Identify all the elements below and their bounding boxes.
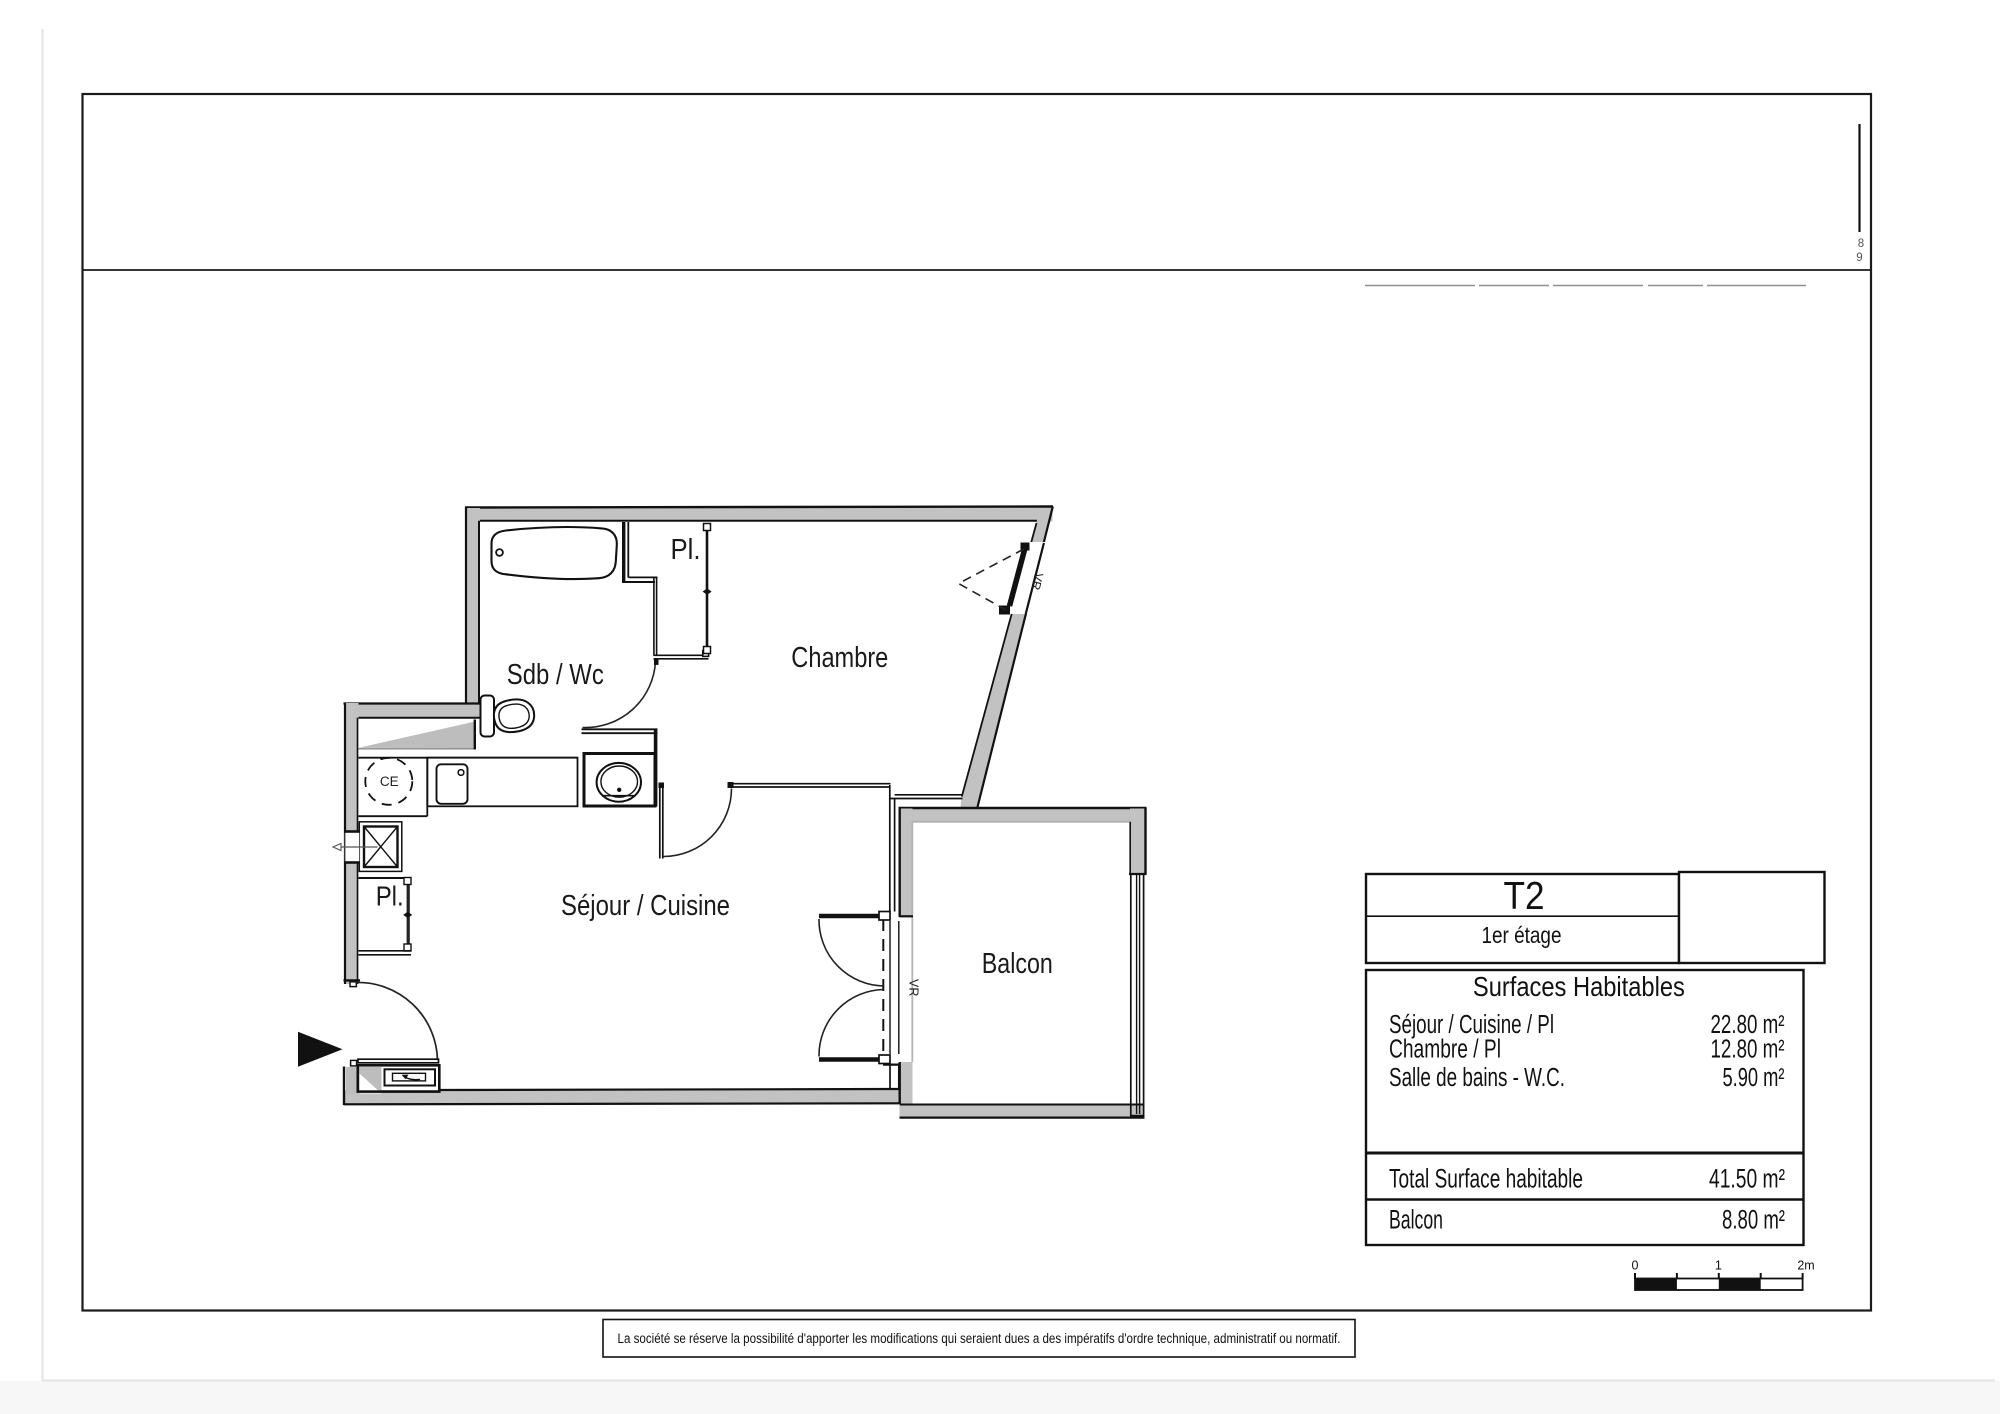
svg-text:0: 0 xyxy=(1632,1259,1639,1273)
svg-text:VR: VR xyxy=(907,979,921,996)
svg-text:Salle de bains - W.C.: Salle de bains - W.C. xyxy=(1389,1064,1565,1092)
svg-text:41.50 m²: 41.50 m² xyxy=(1709,1164,1785,1194)
svg-text:La société se réserve la possi: La société se réserve la possibilité d'a… xyxy=(618,1331,1341,1346)
svg-text:Balcon: Balcon xyxy=(982,948,1053,980)
svg-text:1: 1 xyxy=(1715,1259,1722,1273)
svg-text:9: 9 xyxy=(1856,252,1862,264)
svg-text:12.80 m²: 12.80 m² xyxy=(1711,1036,1785,1064)
svg-text:8.80 m²: 8.80 m² xyxy=(1722,1205,1785,1235)
svg-text:Surfaces Habitables: Surfaces Habitables xyxy=(1473,971,1685,1002)
svg-text:Séjour / Cuisine: Séjour / Cuisine xyxy=(561,890,730,922)
svg-text:8: 8 xyxy=(1858,238,1864,250)
svg-text:Pl.: Pl. xyxy=(671,534,701,566)
svg-text:Total Surface habitable: Total Surface habitable xyxy=(1389,1164,1583,1194)
svg-text:Chambre / Pl: Chambre / Pl xyxy=(1389,1036,1501,1064)
svg-text:1er étage: 1er étage xyxy=(1482,922,1562,948)
svg-text:Pl.: Pl. xyxy=(376,881,404,912)
svg-text:Sdb / Wc: Sdb / Wc xyxy=(507,659,604,691)
svg-text:T2: T2 xyxy=(1504,875,1545,918)
svg-text:2m: 2m xyxy=(1797,1259,1814,1273)
svg-text:Balcon: Balcon xyxy=(1389,1205,1443,1235)
svg-text:Chambre: Chambre xyxy=(791,642,888,674)
svg-text:CE: CE xyxy=(380,774,399,789)
svg-text:5.90 m²: 5.90 m² xyxy=(1723,1064,1785,1092)
